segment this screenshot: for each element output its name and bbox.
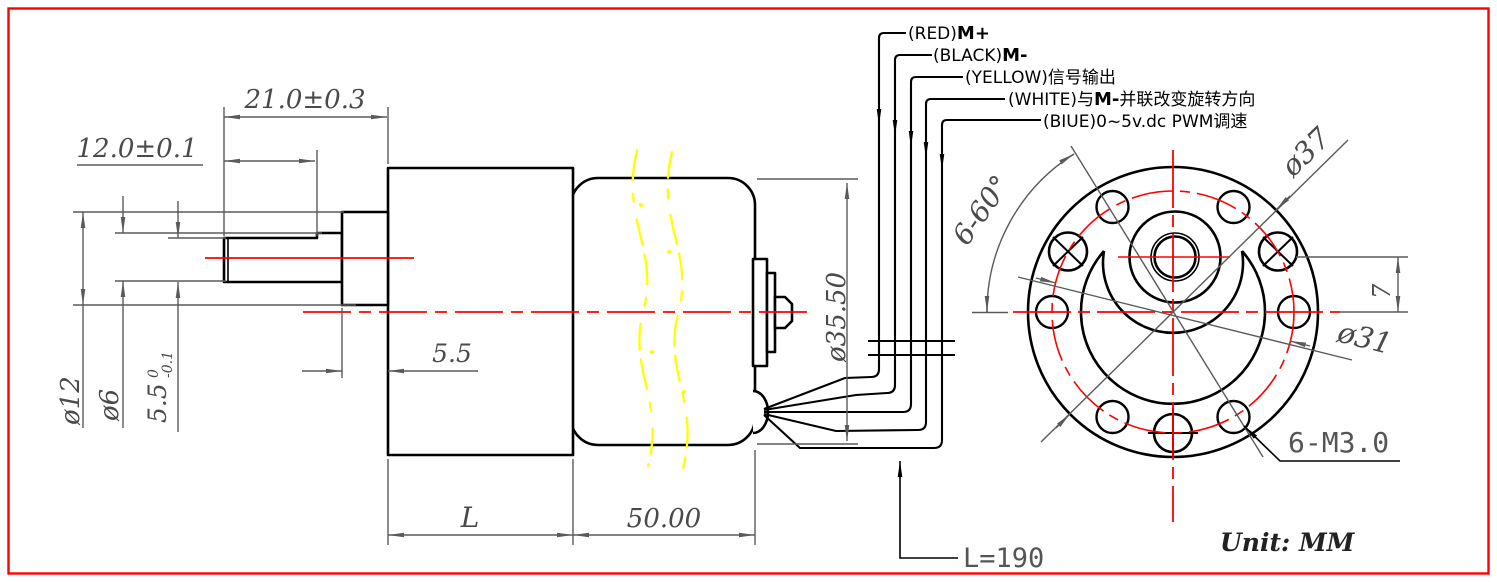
dim-gearbox-length-value: L: [460, 501, 480, 534]
wire-label-red: (RED)M+: [908, 23, 990, 44]
total-length-leader: [900, 461, 958, 558]
angle-extension-line: [1071, 146, 1263, 457]
wire-white: [764, 99, 1005, 431]
wire-label-yellow: (YELLOW)信号输出: [965, 68, 1116, 88]
dim-shaft-length-value: 21.0±0.3: [243, 85, 365, 115]
wire-label-blue: (BIUE)0~5v.dc PWM调速: [1043, 112, 1247, 132]
arc-arrow: [1061, 154, 1074, 162]
dim-shaft-offset-value: 7: [1368, 283, 1396, 299]
front-dimensions: 6-60° ø37 ø31 7 6-M3.0: [946, 120, 1408, 461]
dim-outer-diameter-value: ø37: [1274, 120, 1338, 183]
bolt-circle-diameter-line: [1018, 277, 1352, 360]
dim-flat-length: 12.0±0.1: [76, 134, 317, 236]
dim-hole-angle-value: 6-60°: [946, 169, 1017, 251]
notes: L=190 Unit: MM: [900, 461, 1356, 574]
front-centerlines: [1013, 150, 1340, 522]
diameter-arrow: [1276, 196, 1290, 210]
dim-boss-width-value: 5.5: [432, 339, 472, 368]
break-dot: [682, 390, 686, 394]
unit-note: Unit: MM: [1220, 528, 1356, 557]
screw-150deg: [1049, 233, 1087, 271]
wire-label-black: (BLACK)M-: [933, 45, 1028, 66]
diameter-arrow: [1056, 414, 1070, 428]
dim-mounting-holes-value: 6-M3.0: [1288, 426, 1389, 459]
wire-blue: [764, 120, 1041, 448]
dim-boss-diameter-value: ø12: [56, 376, 86, 426]
side-view: 21.0±0.3 12.0±0.1 ø12 ø6 5.5 0: [56, 33, 1041, 545]
dim-flat-height-tol-lower: -0.1: [160, 351, 176, 378]
wire-yellow: [764, 77, 963, 412]
dim-flat-length-value: 12.0±0.1: [76, 134, 197, 164]
technical-drawing: 21.0±0.3 12.0±0.1 ø12 ø6 5.5 0: [0, 0, 1497, 582]
dim-flat-height-value: 5.5: [143, 383, 172, 423]
dim-motor-length-value: 50.00: [627, 504, 701, 534]
break-dot: [650, 350, 654, 354]
break-dot: [667, 250, 671, 254]
break-dot: [639, 203, 643, 207]
outer-diameter-line: [1041, 140, 1348, 442]
front-view: 6-60° ø37 ø31 7 6-M3.0: [946, 120, 1408, 522]
dim-lengths-bottom: L 50.00: [388, 450, 755, 545]
wire-label-white: (WHITE)与M-并联改变旋转方向: [1008, 89, 1255, 110]
dim-shaft-diameter-value: ø6: [95, 389, 125, 422]
drawing-canvas: 21.0±0.3 12.0±0.1 ø12 ø6 5.5 0: [0, 0, 1497, 582]
dim-bolt-circle-value: ø31: [1333, 315, 1395, 361]
total-length-note: L=190: [963, 543, 1044, 574]
wire-bundle: [753, 33, 1041, 448]
dim-shaft-diameters: ø12 ø6 5.5 0 -0.1: [56, 196, 356, 432]
dim-motor-diameter-value: ø35.50: [822, 272, 852, 363]
